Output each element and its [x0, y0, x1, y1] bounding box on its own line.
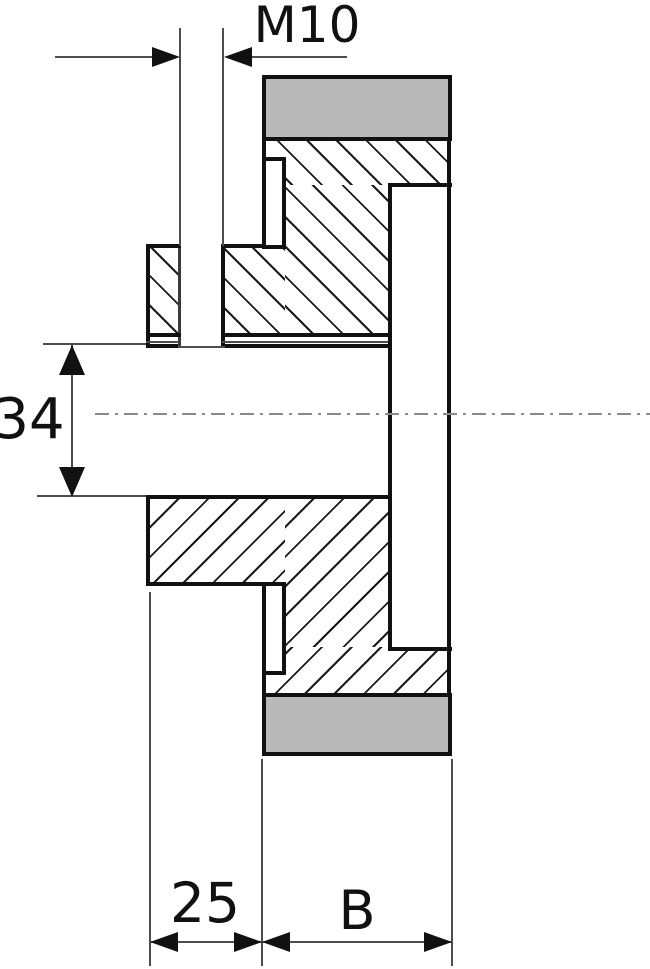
- tooth-band-bottom: [262, 693, 452, 756]
- hub-top-line-left: [146, 244, 181, 248]
- keyway-line-right: [221, 333, 392, 337]
- tapped-hole-m10: [178, 244, 225, 348]
- keyway-line-left: [146, 333, 181, 337]
- bore-bottom-line: [146, 495, 392, 499]
- hub-hatch-top-left: [150, 248, 179, 334]
- hub-face-line-lower: [146, 497, 150, 586]
- dim-b-arrow-right: [424, 932, 452, 952]
- bore-top-line-right: [225, 344, 392, 348]
- rim-hatch-bottom: [264, 647, 450, 693]
- keyway-thin-line-right: [222, 341, 392, 343]
- dim-25-arrow-right: [234, 932, 262, 952]
- recess-step-bottom: [388, 647, 452, 651]
- tooth-band-top: [262, 75, 452, 141]
- hole-bottom-line: [178, 346, 225, 348]
- hub-bottom-line: [146, 582, 266, 586]
- web-hatch-top: [285, 185, 390, 334]
- dim-m10-arrow-left: [152, 47, 180, 67]
- dim-ext-hub-face: [149, 592, 151, 966]
- technical-drawing-canvas: M10 34 25 B: [0, 0, 650, 969]
- recess-step-top: [388, 183, 452, 187]
- rim-hatch-top: [264, 139, 450, 185]
- hub-hatch-bottom: [150, 499, 285, 582]
- hub-projection-label: 25: [170, 876, 240, 931]
- face-groove-top: [262, 157, 286, 249]
- thread-label: M10: [254, 0, 361, 50]
- dim-m10-arrow-right: [224, 47, 252, 67]
- hub-top-line-right: [221, 244, 266, 248]
- rim-left-face-top: [262, 139, 266, 161]
- face-groove-bottom: [262, 582, 286, 675]
- face-width-label: B: [338, 884, 375, 938]
- centerline: [95, 413, 650, 415]
- rim-left-face-bottom: [262, 671, 266, 695]
- dim-34-arrow-up: [59, 345, 85, 375]
- dim-m10-leader-right: [249, 56, 347, 58]
- dim-34-arrow-down: [59, 467, 85, 497]
- dim-b-arrow-left: [262, 932, 290, 952]
- dim-25-arrow-left: [150, 932, 178, 952]
- bore-top-line-left: [146, 344, 178, 348]
- web-right-face-line: [388, 183, 392, 651]
- web-hatch-bottom: [285, 499, 390, 647]
- gear-right-face-line: [447, 141, 451, 693]
- dim-34-ext-bottom: [37, 495, 146, 497]
- keyway-thin-line-left: [146, 341, 179, 343]
- bore-diameter-label: 34: [0, 392, 65, 448]
- hub-hatch-top-right: [222, 248, 285, 334]
